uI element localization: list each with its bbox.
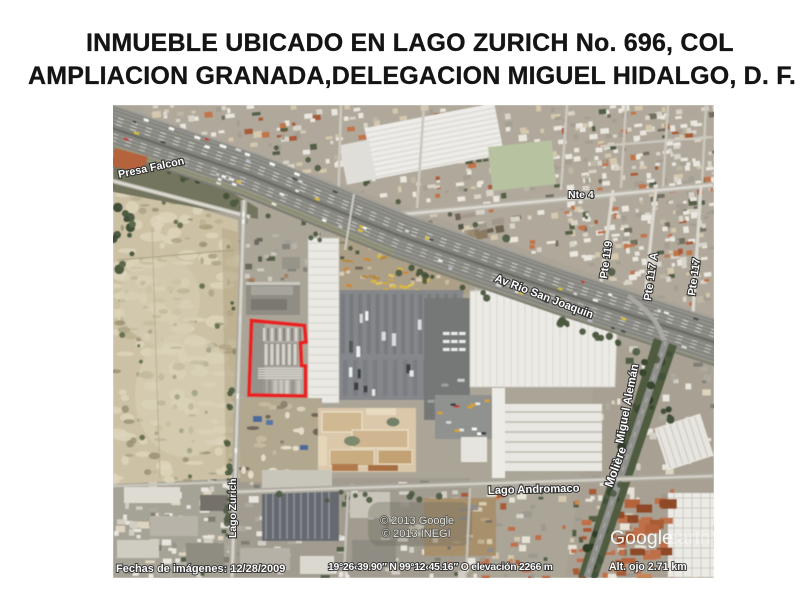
svg-text:© 2013 Google: © 2013 Google bbox=[380, 515, 454, 527]
svg-text:Alt. ojo 2.71 km: Alt. ojo 2.71 km bbox=[609, 561, 687, 573]
svg-text:Lago Zurich: Lago Zurich bbox=[228, 479, 239, 538]
svg-text:© 2013 INEGI: © 2013 INEGI bbox=[382, 528, 451, 540]
svg-text:Google: Google bbox=[610, 527, 673, 549]
svg-text:Fechas de imágenes: 12/28/2009: Fechas de imágenes: 12/28/2009 bbox=[116, 563, 285, 575]
svg-text:Lago Andromaco: Lago Andromaco bbox=[488, 483, 580, 497]
svg-text:earth: earth bbox=[667, 528, 710, 549]
svg-text:Nte 4: Nte 4 bbox=[568, 189, 594, 201]
svg-text:19°26‹39.90″ N 99°12‹45.16″ O: 19°26‹39.90″ N 99°12‹45.16″ O elevación … bbox=[328, 562, 553, 573]
